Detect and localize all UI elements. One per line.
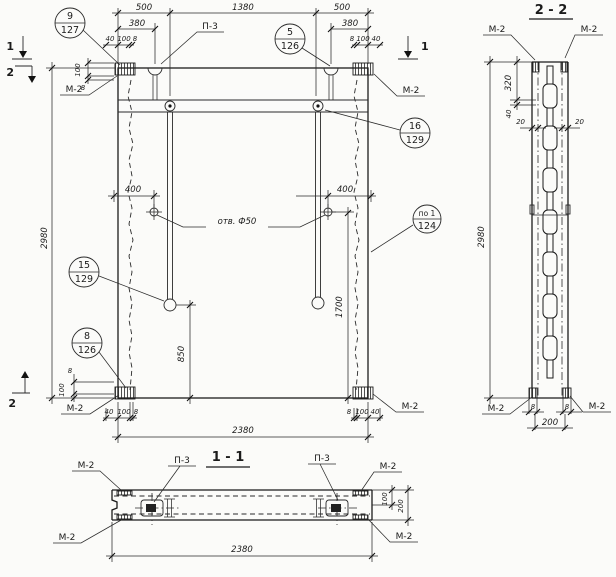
s11-dim-200: 200: [397, 499, 405, 513]
dim-100-tr: 100: [356, 35, 370, 43]
svg-text:8: 8: [84, 331, 90, 342]
dim-2980: 2980: [40, 227, 50, 249]
m2-label-top-right: М-2: [374, 74, 425, 96]
s11-dim-100: 100: [381, 492, 389, 506]
joint-circle-left: [165, 101, 175, 111]
svg-text:по 1: по 1: [419, 209, 436, 218]
svg-text:2: 2: [8, 397, 16, 410]
dim-100-tl: 100: [117, 35, 131, 43]
joint-circle-right: [313, 101, 323, 111]
rod-left: [168, 112, 173, 299]
svg-text:16: 16: [409, 121, 421, 132]
svg-text:М-2: М-2: [78, 461, 95, 471]
s11-p3-left: П-3: [154, 456, 196, 502]
dim-380-left: 380: [129, 19, 145, 29]
svg-text:1: 1: [421, 40, 429, 53]
top-chord: [118, 100, 368, 112]
svg-text:126: 126: [281, 41, 299, 52]
s11-m2-bottom-right: М-2: [367, 518, 418, 542]
s22-m2-bottom-left: М-2: [482, 397, 532, 414]
svg-text:М-2: М-2: [489, 25, 506, 35]
svg-text:124: 124: [418, 221, 436, 232]
svg-text:М-2: М-2: [589, 402, 606, 412]
s22-plate-tr: [561, 62, 567, 72]
dim-1700: 1700: [335, 296, 345, 318]
svg-text:М-2: М-2: [396, 532, 413, 542]
elevation-view: отв. Ф50 500 1380 500 380 380 40 100 8 8…: [6, 3, 441, 443]
s22-dim-lines: [484, 56, 582, 430]
rod-right-loop: [312, 297, 324, 309]
panel-outline: [118, 68, 368, 398]
s22-dim-8-left: 8: [531, 403, 536, 411]
dim-400-left: 400: [125, 185, 141, 195]
plate-top-left: [115, 63, 135, 75]
svg-text:2 - 2: 2 - 2: [535, 3, 568, 18]
section-mark-1-top-left: 1: [6, 36, 32, 59]
s22-dim-200: 200: [542, 418, 558, 428]
s22-m2-bottom-right: М-2: [570, 396, 611, 412]
p3-label-top: П-3: [161, 22, 224, 64]
s11-m2-bottom-left: М-2: [53, 519, 123, 543]
svg-text:126: 126: [78, 345, 96, 356]
s11-m2-top-left: М-2: [72, 461, 121, 490]
dim-8-tr: 8: [350, 35, 355, 43]
svg-text:М-2: М-2: [488, 404, 505, 414]
extension-lines: [46, 8, 380, 443]
svg-text:1: 1: [6, 40, 14, 53]
svg-text:М-2: М-2: [403, 86, 420, 96]
callout-15-129: 15 129: [69, 257, 164, 301]
svg-text:М-2: М-2: [66, 85, 83, 95]
s11-plate-br: [353, 515, 368, 519]
svg-text:1 - 1: 1 - 1: [212, 450, 245, 465]
svg-text:127: 127: [61, 25, 79, 36]
m2-label-bottom-right: М-2: [373, 394, 424, 412]
dim-8-br: 8: [347, 408, 352, 416]
top-notches: [148, 68, 338, 75]
section-2-2-title: 2 - 2: [529, 3, 573, 19]
svg-text:П-3: П-3: [174, 456, 190, 466]
plate-bottom-right: [353, 387, 373, 399]
svg-text:129: 129: [406, 135, 424, 146]
s11-plate-tl: [117, 491, 132, 495]
svg-text:П-3: П-3: [314, 454, 330, 464]
dim-100-side-bottom: 100: [58, 383, 66, 397]
s22-plate-bl: [529, 388, 537, 398]
dim-40-br: 40: [371, 408, 380, 416]
section-2-2-view: 2 - 2: [477, 3, 611, 431]
dim-100-br: 100: [355, 408, 369, 416]
rod-right: [316, 112, 321, 297]
s11-dim-2380: 2380: [231, 545, 253, 555]
drawing-sheet: отв. Ф50 500 1380 500 380 380 40 100 8 8…: [0, 0, 616, 577]
s11-plate-bl: [117, 515, 132, 519]
dim-850: 850: [177, 346, 187, 362]
dim-2380: 2380: [232, 426, 254, 436]
dim-100-side-top: 100: [74, 63, 82, 77]
svg-text:М-2: М-2: [581, 25, 598, 35]
s11-p3-right: П-3: [308, 454, 338, 500]
s22-dim-40: 40: [505, 109, 513, 118]
s22-m2-top-right: М-2: [565, 25, 603, 58]
section-mark-1-top-right: 1: [398, 36, 429, 59]
dim-8-bl: 8: [134, 408, 139, 416]
rod-left-loop: [164, 299, 176, 311]
section-1-1-title: 1 - 1: [206, 450, 250, 467]
broken-edge-right: [354, 80, 359, 390]
dim-8-side-bottom: 8: [68, 367, 73, 375]
broken-edge-left: [128, 80, 133, 390]
s22-dim-8-right: 8: [565, 403, 570, 411]
plate-bottom-left: [115, 387, 135, 399]
callout-16-129: 16 129: [325, 110, 430, 148]
s11-plate-tr: [353, 491, 368, 495]
hollow-voids: [543, 66, 557, 378]
dim-1380: 1380: [232, 3, 254, 13]
callout-po1-124: по 1 124: [371, 205, 441, 252]
callout-5-126: 5 126: [275, 24, 330, 66]
s22-plate-tl: [533, 62, 539, 72]
s11-dim-ticks: [109, 487, 411, 559]
holes-label: отв. Ф50: [218, 217, 257, 227]
s22-dim-20-left: 20: [516, 118, 525, 126]
dim-500-left: 500: [136, 3, 152, 13]
s22-plate-br: [563, 388, 571, 398]
s22-dim-320: 320: [504, 75, 514, 91]
dim-400-right: 400: [337, 185, 353, 195]
svg-text:129: 129: [75, 274, 93, 285]
svg-text:М-2: М-2: [380, 462, 397, 472]
dim-40-tr: 40: [372, 35, 381, 43]
section-mark-2-bottom-left: 2: [8, 371, 30, 410]
s22-dim-2980: 2980: [477, 226, 487, 248]
svg-text:15: 15: [78, 260, 90, 271]
svg-text:2: 2: [6, 66, 14, 79]
svg-text:5: 5: [287, 27, 293, 38]
engineering-drawing: отв. Ф50 500 1380 500 380 380 40 100 8 8…: [0, 0, 616, 577]
svg-text:М-2: М-2: [67, 404, 84, 414]
section-1-1-view: 1 - 1 100 200 2380 М-2: [53, 450, 418, 562]
svg-text:М-2: М-2: [402, 402, 419, 412]
s22-dim-ticks: [487, 59, 574, 431]
section-mark-2-top-left: 2: [6, 66, 36, 83]
dim-8-tl: 8: [133, 35, 138, 43]
dim-500-right: 500: [334, 3, 350, 13]
dim-40-tl: 40: [106, 35, 115, 43]
dim-100-bl: 100: [117, 408, 131, 416]
svg-text:П-3: П-3: [202, 22, 218, 32]
plate-top-right: [353, 63, 373, 75]
s22-m2-top-left: М-2: [483, 25, 535, 60]
s11-m2-top-right: М-2: [361, 462, 402, 491]
dim-40-bl: 40: [105, 408, 114, 416]
svg-text:9: 9: [67, 11, 73, 22]
s22-dim-20-right: 20: [575, 118, 584, 126]
dim-380-right: 380: [342, 19, 358, 29]
svg-text:М-2: М-2: [59, 533, 76, 543]
